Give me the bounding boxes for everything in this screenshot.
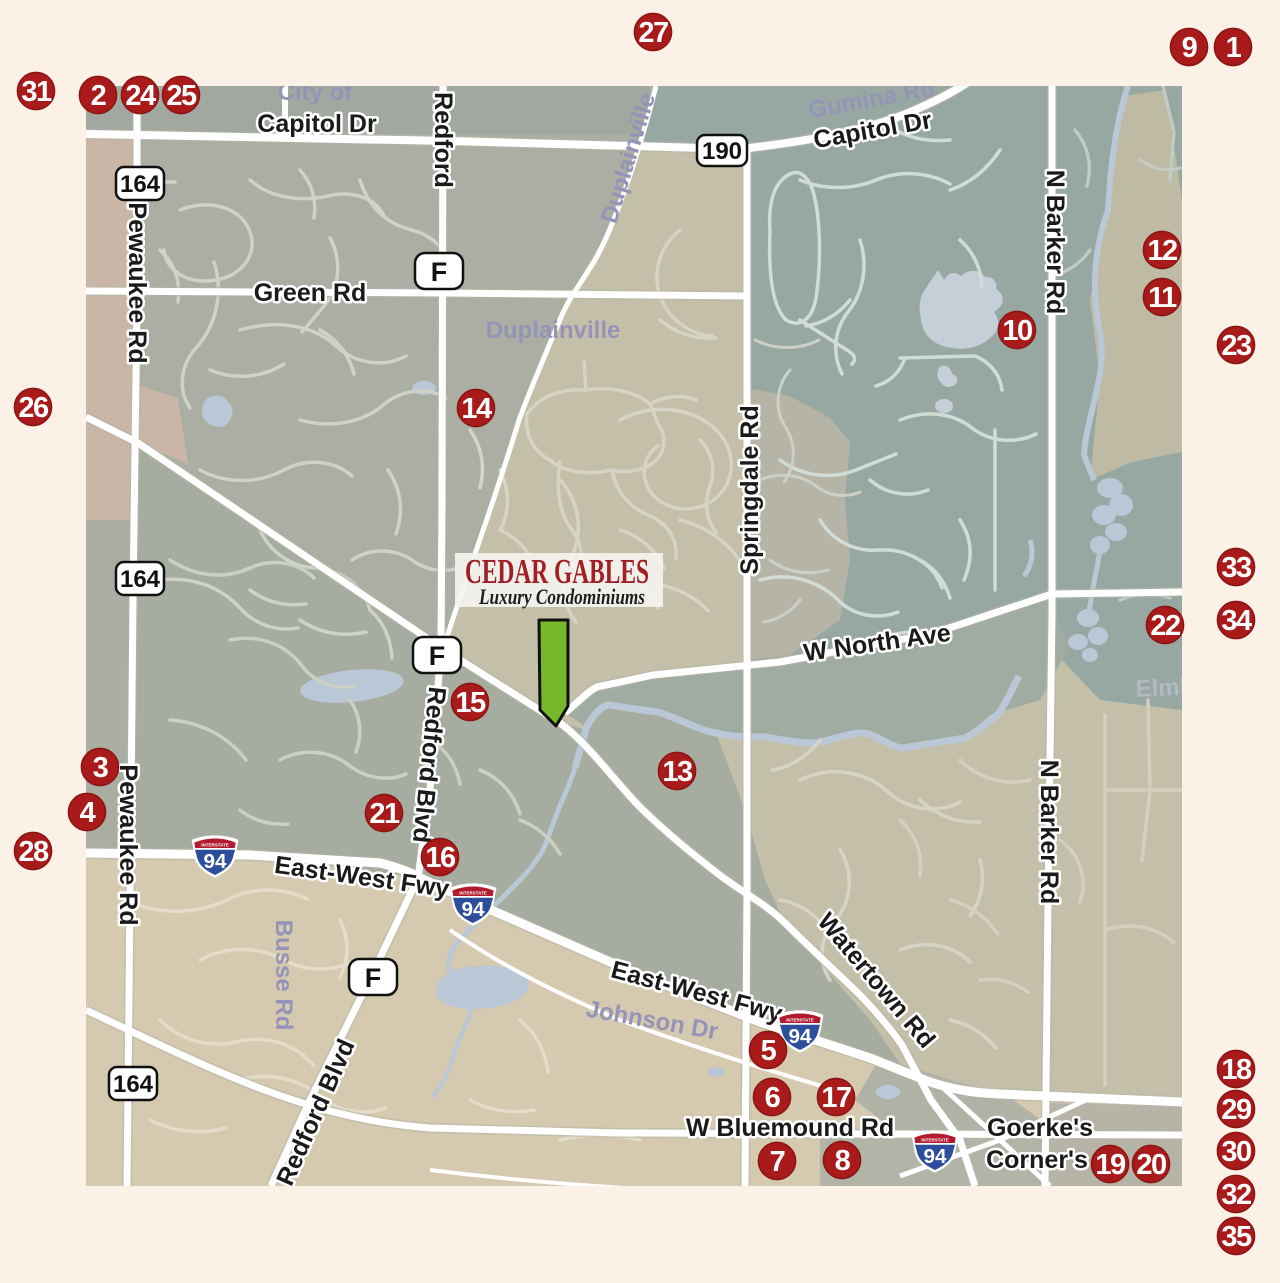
svg-text:30: 30 [1221, 1136, 1251, 1168]
svg-text:Pewaukee Rd: Pewaukee Rd [114, 764, 142, 925]
svg-text:6: 6 [765, 1082, 781, 1114]
svg-text:2: 2 [91, 80, 106, 112]
svg-text:12: 12 [1147, 235, 1177, 267]
svg-text:Corner's: Corner's [986, 1146, 1088, 1174]
svg-text:14: 14 [461, 393, 492, 425]
svg-text:17: 17 [821, 1082, 851, 1114]
svg-text:1: 1 [1226, 32, 1242, 64]
svg-text:Duplainville: Duplainville [486, 317, 621, 344]
svg-text:26: 26 [18, 392, 49, 424]
svg-text:8: 8 [835, 1145, 851, 1177]
svg-text:Redford: Redford [429, 92, 457, 188]
svg-text:N Barker Rd: N Barker Rd [1035, 760, 1063, 905]
svg-text:13: 13 [662, 756, 693, 788]
svg-text:Capitol Dr: Capitol Dr [257, 110, 377, 138]
svg-text:190: 190 [702, 138, 742, 165]
svg-text:35: 35 [1221, 1221, 1252, 1253]
svg-text:F: F [431, 257, 448, 287]
svg-text:4: 4 [80, 797, 96, 829]
svg-text:9: 9 [1182, 32, 1198, 64]
svg-text:21: 21 [369, 798, 400, 830]
svg-text:Goerke's: Goerke's [987, 1114, 1093, 1142]
svg-text:164: 164 [120, 566, 161, 593]
svg-text:16: 16 [425, 842, 456, 874]
svg-text:11: 11 [1148, 282, 1177, 314]
svg-text:N Barker Rd: N Barker Rd [1041, 170, 1069, 315]
svg-text:Pewaukee Rd: Pewaukee Rd [123, 202, 151, 363]
svg-text:W Bluemound Rd: W Bluemound Rd [686, 1114, 894, 1142]
svg-text:32: 32 [1221, 1179, 1251, 1211]
svg-text:29: 29 [1221, 1094, 1252, 1126]
svg-text:22: 22 [1150, 610, 1180, 642]
svg-text:33: 33 [1221, 552, 1252, 584]
svg-text:Luxury Condominiums: Luxury Condominiums [478, 584, 645, 609]
svg-text:23: 23 [1221, 330, 1252, 362]
svg-text:164: 164 [113, 1071, 154, 1098]
svg-text:Springdale Rd: Springdale Rd [736, 405, 764, 574]
svg-text:7: 7 [770, 1146, 785, 1178]
svg-text:24: 24 [125, 80, 156, 112]
svg-text:34: 34 [1221, 605, 1252, 637]
svg-text:3: 3 [93, 752, 109, 784]
svg-text:164: 164 [120, 171, 161, 198]
svg-text:Green Rd: Green Rd [254, 279, 367, 307]
svg-text:18: 18 [1221, 1054, 1252, 1086]
svg-text:28: 28 [18, 836, 49, 868]
svg-text:27: 27 [638, 17, 668, 49]
svg-text:20: 20 [1136, 1149, 1166, 1181]
svg-text:15: 15 [455, 687, 486, 719]
svg-text:19: 19 [1095, 1149, 1126, 1181]
svg-text:F: F [365, 963, 382, 993]
svg-text:10: 10 [1002, 315, 1032, 347]
svg-text:Busse Rd: Busse Rd [270, 920, 297, 1031]
svg-text:5: 5 [761, 1035, 777, 1067]
svg-text:31: 31 [21, 76, 52, 108]
svg-text:F: F [429, 641, 446, 671]
svg-text:25: 25 [166, 80, 197, 112]
